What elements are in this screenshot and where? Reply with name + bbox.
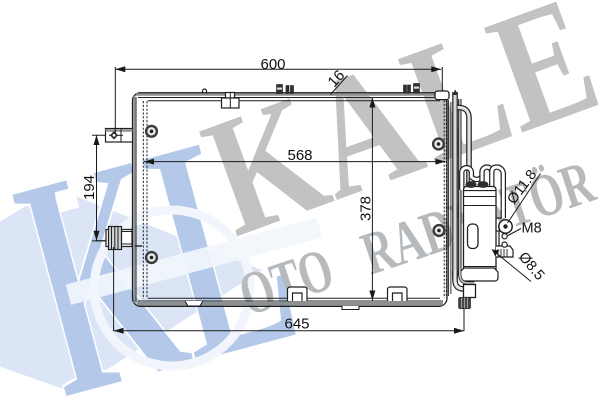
svg-text:645: 645 [284, 316, 309, 333]
svg-text:M8: M8 [522, 221, 542, 237]
svg-text:600: 600 [260, 56, 285, 73]
svg-text:194: 194 [81, 175, 98, 200]
svg-text:568: 568 [287, 147, 312, 164]
svg-text:378: 378 [358, 196, 375, 221]
svg-text:Ø8.5: Ø8.5 [515, 249, 547, 283]
